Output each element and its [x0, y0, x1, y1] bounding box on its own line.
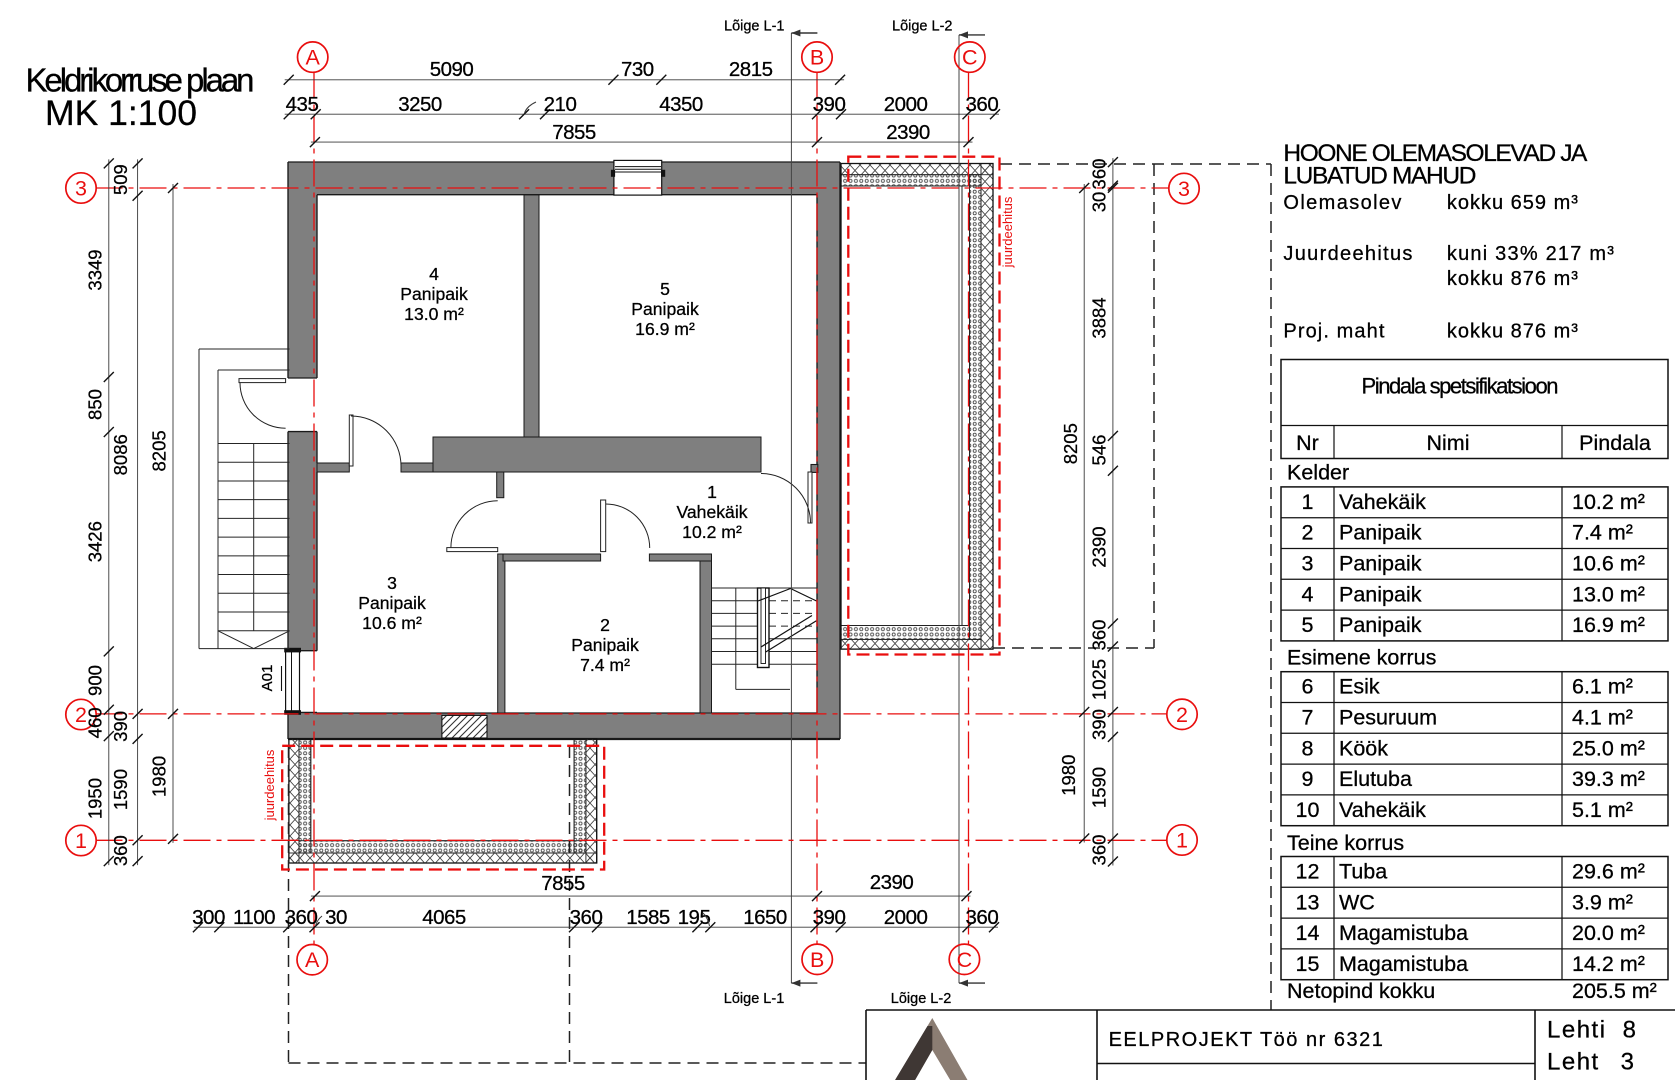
svg-text:1: 1	[1302, 490, 1314, 514]
svg-text:MK 1:100: MK 1:100	[45, 93, 197, 133]
svg-text:850: 850	[85, 389, 106, 420]
svg-text:30: 30	[325, 906, 347, 929]
svg-text:390: 390	[1089, 709, 1110, 740]
svg-text:900: 900	[85, 665, 106, 696]
svg-text:3884: 3884	[1089, 297, 1110, 338]
svg-text:39.3 m²: 39.3 m²	[1572, 767, 1645, 791]
svg-text:2815: 2815	[729, 58, 773, 81]
svg-text:10.2 m²: 10.2 m²	[682, 522, 742, 542]
svg-text:546: 546	[1089, 435, 1110, 466]
svg-text:1590: 1590	[1089, 767, 1110, 808]
svg-text:1100: 1100	[233, 906, 275, 929]
svg-text:Pesuruum: Pesuruum	[1339, 706, 1437, 730]
svg-text:730: 730	[621, 58, 654, 81]
svg-text:16.9 m²: 16.9 m²	[635, 319, 695, 339]
svg-text:Tuba: Tuba	[1339, 860, 1387, 884]
svg-text:1650: 1650	[743, 906, 787, 929]
svg-text:8: 8	[1302, 736, 1314, 760]
svg-text:Köök: Köök	[1339, 736, 1388, 760]
svg-text:360: 360	[570, 906, 603, 929]
svg-text:14: 14	[1296, 921, 1320, 945]
svg-text:13.0 m²: 13.0 m²	[1572, 582, 1645, 606]
svg-text:Esik: Esik	[1339, 675, 1380, 699]
svg-text:Netopind kokku: Netopind kokku	[1287, 979, 1435, 1003]
svg-text:2000: 2000	[884, 93, 928, 116]
svg-text:300: 300	[192, 906, 225, 929]
svg-text:kuni 33% 217 m³: kuni 33% 217 m³	[1447, 243, 1614, 265]
svg-text:205.5 m²: 205.5 m²	[1572, 979, 1657, 1003]
svg-text:2390: 2390	[870, 871, 914, 894]
svg-text:Nr: Nr	[1296, 431, 1319, 455]
svg-text:360: 360	[1089, 159, 1110, 190]
svg-text:13.0 m²: 13.0 m²	[404, 304, 464, 324]
svg-text:Juurdeehitus: Juurdeehitus	[1283, 243, 1412, 265]
svg-text:Lõige L-2: Lõige L-2	[891, 991, 951, 1007]
svg-text:29.6 m²: 29.6 m²	[1572, 860, 1645, 884]
svg-text:Pindala: Pindala	[1579, 431, 1651, 455]
svg-text:Olemasolev: Olemasolev	[1283, 192, 1401, 214]
svg-text:Panipaik: Panipaik	[1339, 552, 1422, 576]
svg-text:kokku 659 m³: kokku 659 m³	[1447, 192, 1578, 214]
svg-text:1980: 1980	[149, 756, 170, 797]
svg-text:4350: 4350	[659, 93, 703, 116]
svg-text:Esimene korrus: Esimene korrus	[1287, 646, 1436, 670]
svg-text:Lehti: Lehti	[1547, 1017, 1607, 1044]
svg-text:1950: 1950	[85, 778, 106, 819]
svg-text:juurdeehitus: juurdeehitus	[1000, 196, 1015, 268]
svg-text:EELPROJEKT Töö nr 6321: EELPROJEKT Töö nr 6321	[1109, 1029, 1385, 1051]
svg-text:8205: 8205	[149, 430, 170, 471]
svg-text:1980: 1980	[1058, 755, 1079, 796]
svg-text:B: B	[810, 948, 824, 972]
svg-text:2390: 2390	[886, 121, 930, 144]
svg-text:2: 2	[1176, 703, 1188, 727]
svg-text:Panipaik: Panipaik	[571, 635, 639, 655]
svg-text:13: 13	[1296, 890, 1320, 914]
svg-text:3: 3	[387, 573, 397, 593]
svg-text:Lõige L-1: Lõige L-1	[724, 19, 784, 35]
svg-text:Proj. maht: Proj. maht	[1283, 321, 1384, 343]
svg-text:LUBATUD MAHUD: LUBATUD MAHUD	[1283, 163, 1476, 190]
svg-text:6: 6	[1302, 675, 1314, 699]
svg-text:1585: 1585	[626, 906, 670, 929]
svg-text:5: 5	[660, 279, 670, 299]
svg-text:Panipaik: Panipaik	[358, 593, 426, 613]
svg-text:1: 1	[75, 829, 87, 853]
svg-text:7855: 7855	[541, 872, 585, 895]
svg-text:Panipaik: Panipaik	[400, 284, 468, 304]
svg-text:Magamistuba: Magamistuba	[1339, 921, 1468, 945]
svg-text:360: 360	[285, 906, 318, 929]
svg-text:25.0 m²: 25.0 m²	[1572, 736, 1645, 760]
svg-text:Panipaik: Panipaik	[631, 299, 699, 319]
svg-text:2: 2	[600, 615, 610, 635]
svg-text:A01: A01	[259, 665, 276, 692]
svg-text:360: 360	[966, 906, 999, 929]
svg-text:8086: 8086	[110, 434, 131, 475]
svg-text:A: A	[305, 948, 320, 972]
svg-text:Leht: Leht	[1547, 1049, 1600, 1076]
svg-text:360: 360	[966, 93, 999, 116]
svg-text:4065: 4065	[422, 906, 466, 929]
svg-text:10: 10	[1296, 798, 1320, 822]
svg-text:Panipaik: Panipaik	[1339, 582, 1422, 606]
svg-text:4: 4	[429, 264, 439, 284]
svg-text:B: B	[810, 46, 824, 70]
svg-text:Nimi: Nimi	[1427, 431, 1470, 455]
svg-text:210: 210	[544, 93, 577, 116]
svg-text:1025: 1025	[1089, 659, 1110, 700]
svg-text:9: 9	[1302, 767, 1314, 791]
svg-text:360: 360	[1089, 835, 1110, 866]
svg-text:C: C	[962, 46, 978, 70]
svg-text:460: 460	[85, 707, 106, 738]
svg-text:390: 390	[813, 906, 846, 929]
svg-text:4.1 m²: 4.1 m²	[1572, 706, 1633, 730]
svg-text:3: 3	[75, 177, 87, 201]
svg-text:7: 7	[1302, 706, 1314, 730]
svg-text:3426: 3426	[85, 521, 106, 562]
svg-text:195: 195	[678, 906, 711, 929]
svg-text:A: A	[306, 46, 321, 70]
svg-text:5.1 m²: 5.1 m²	[1572, 798, 1633, 822]
svg-text:8205: 8205	[1060, 423, 1081, 464]
svg-text:1: 1	[707, 482, 717, 502]
svg-text:Pindala spetsifikatsioon: Pindala spetsifikatsioon	[1362, 374, 1559, 399]
svg-text:kokku 876 m³: kokku 876 m³	[1447, 268, 1578, 290]
svg-text:509: 509	[110, 164, 131, 195]
svg-text:7.4 m²: 7.4 m²	[1572, 521, 1633, 545]
svg-text:Vahekäik: Vahekäik	[676, 502, 747, 522]
svg-text:390: 390	[813, 93, 846, 116]
svg-text:5090: 5090	[430, 58, 474, 81]
svg-text:20.0 m²: 20.0 m²	[1572, 921, 1645, 945]
svg-text:4: 4	[1302, 582, 1314, 606]
svg-text:360: 360	[110, 835, 131, 866]
svg-text:7855: 7855	[552, 121, 596, 144]
svg-text:2390: 2390	[1089, 526, 1110, 567]
svg-text:Teine korrus: Teine korrus	[1287, 831, 1404, 855]
svg-text:10.2 m²: 10.2 m²	[1572, 490, 1645, 514]
svg-text:WC: WC	[1339, 890, 1375, 914]
svg-text:Panipaik: Panipaik	[1339, 521, 1422, 545]
svg-text:7.4 m²: 7.4 m²	[580, 655, 630, 675]
svg-text:8: 8	[1623, 1017, 1636, 1044]
svg-text:360: 360	[1089, 620, 1110, 651]
svg-text:C: C	[957, 948, 973, 972]
svg-text:6.1 m²: 6.1 m²	[1572, 675, 1633, 699]
svg-text:3: 3	[1302, 552, 1314, 576]
svg-text:435: 435	[286, 93, 319, 116]
svg-text:Vahekäik: Vahekäik	[1339, 798, 1426, 822]
svg-text:Kelder: Kelder	[1287, 461, 1349, 485]
svg-text:Vahekäik: Vahekäik	[1339, 490, 1426, 514]
svg-text:16.9 m²: 16.9 m²	[1572, 613, 1645, 637]
svg-text:3.9 m²: 3.9 m²	[1572, 890, 1633, 914]
svg-text:10.6 m²: 10.6 m²	[362, 613, 422, 633]
svg-text:juurdeehitus: juurdeehitus	[262, 749, 277, 821]
svg-text:3349: 3349	[85, 249, 106, 290]
svg-text:14.2 m²: 14.2 m²	[1572, 952, 1645, 976]
svg-text:Elutuba: Elutuba	[1339, 767, 1412, 791]
svg-text:Magamistuba: Magamistuba	[1339, 952, 1468, 976]
svg-text:3: 3	[1621, 1049, 1634, 1076]
svg-text:Panipaik: Panipaik	[1339, 613, 1422, 637]
svg-text:Lõige L-1: Lõige L-1	[724, 991, 784, 1007]
svg-text:3: 3	[1178, 177, 1190, 201]
svg-text:Lõige L-2: Lõige L-2	[892, 19, 952, 35]
svg-text:1590: 1590	[110, 769, 131, 810]
svg-text:5: 5	[1302, 613, 1314, 637]
svg-text:390: 390	[110, 711, 131, 742]
svg-text:10.6 m²: 10.6 m²	[1572, 552, 1645, 576]
svg-text:kokku 876 m³: kokku 876 m³	[1447, 321, 1578, 343]
svg-text:3250: 3250	[398, 93, 442, 116]
svg-text:2000: 2000	[884, 906, 928, 929]
svg-text:15: 15	[1296, 952, 1320, 976]
svg-text:1: 1	[1176, 829, 1188, 853]
svg-text:12: 12	[1296, 860, 1320, 884]
svg-text:2: 2	[1302, 521, 1314, 545]
svg-text:30: 30	[1089, 192, 1110, 213]
